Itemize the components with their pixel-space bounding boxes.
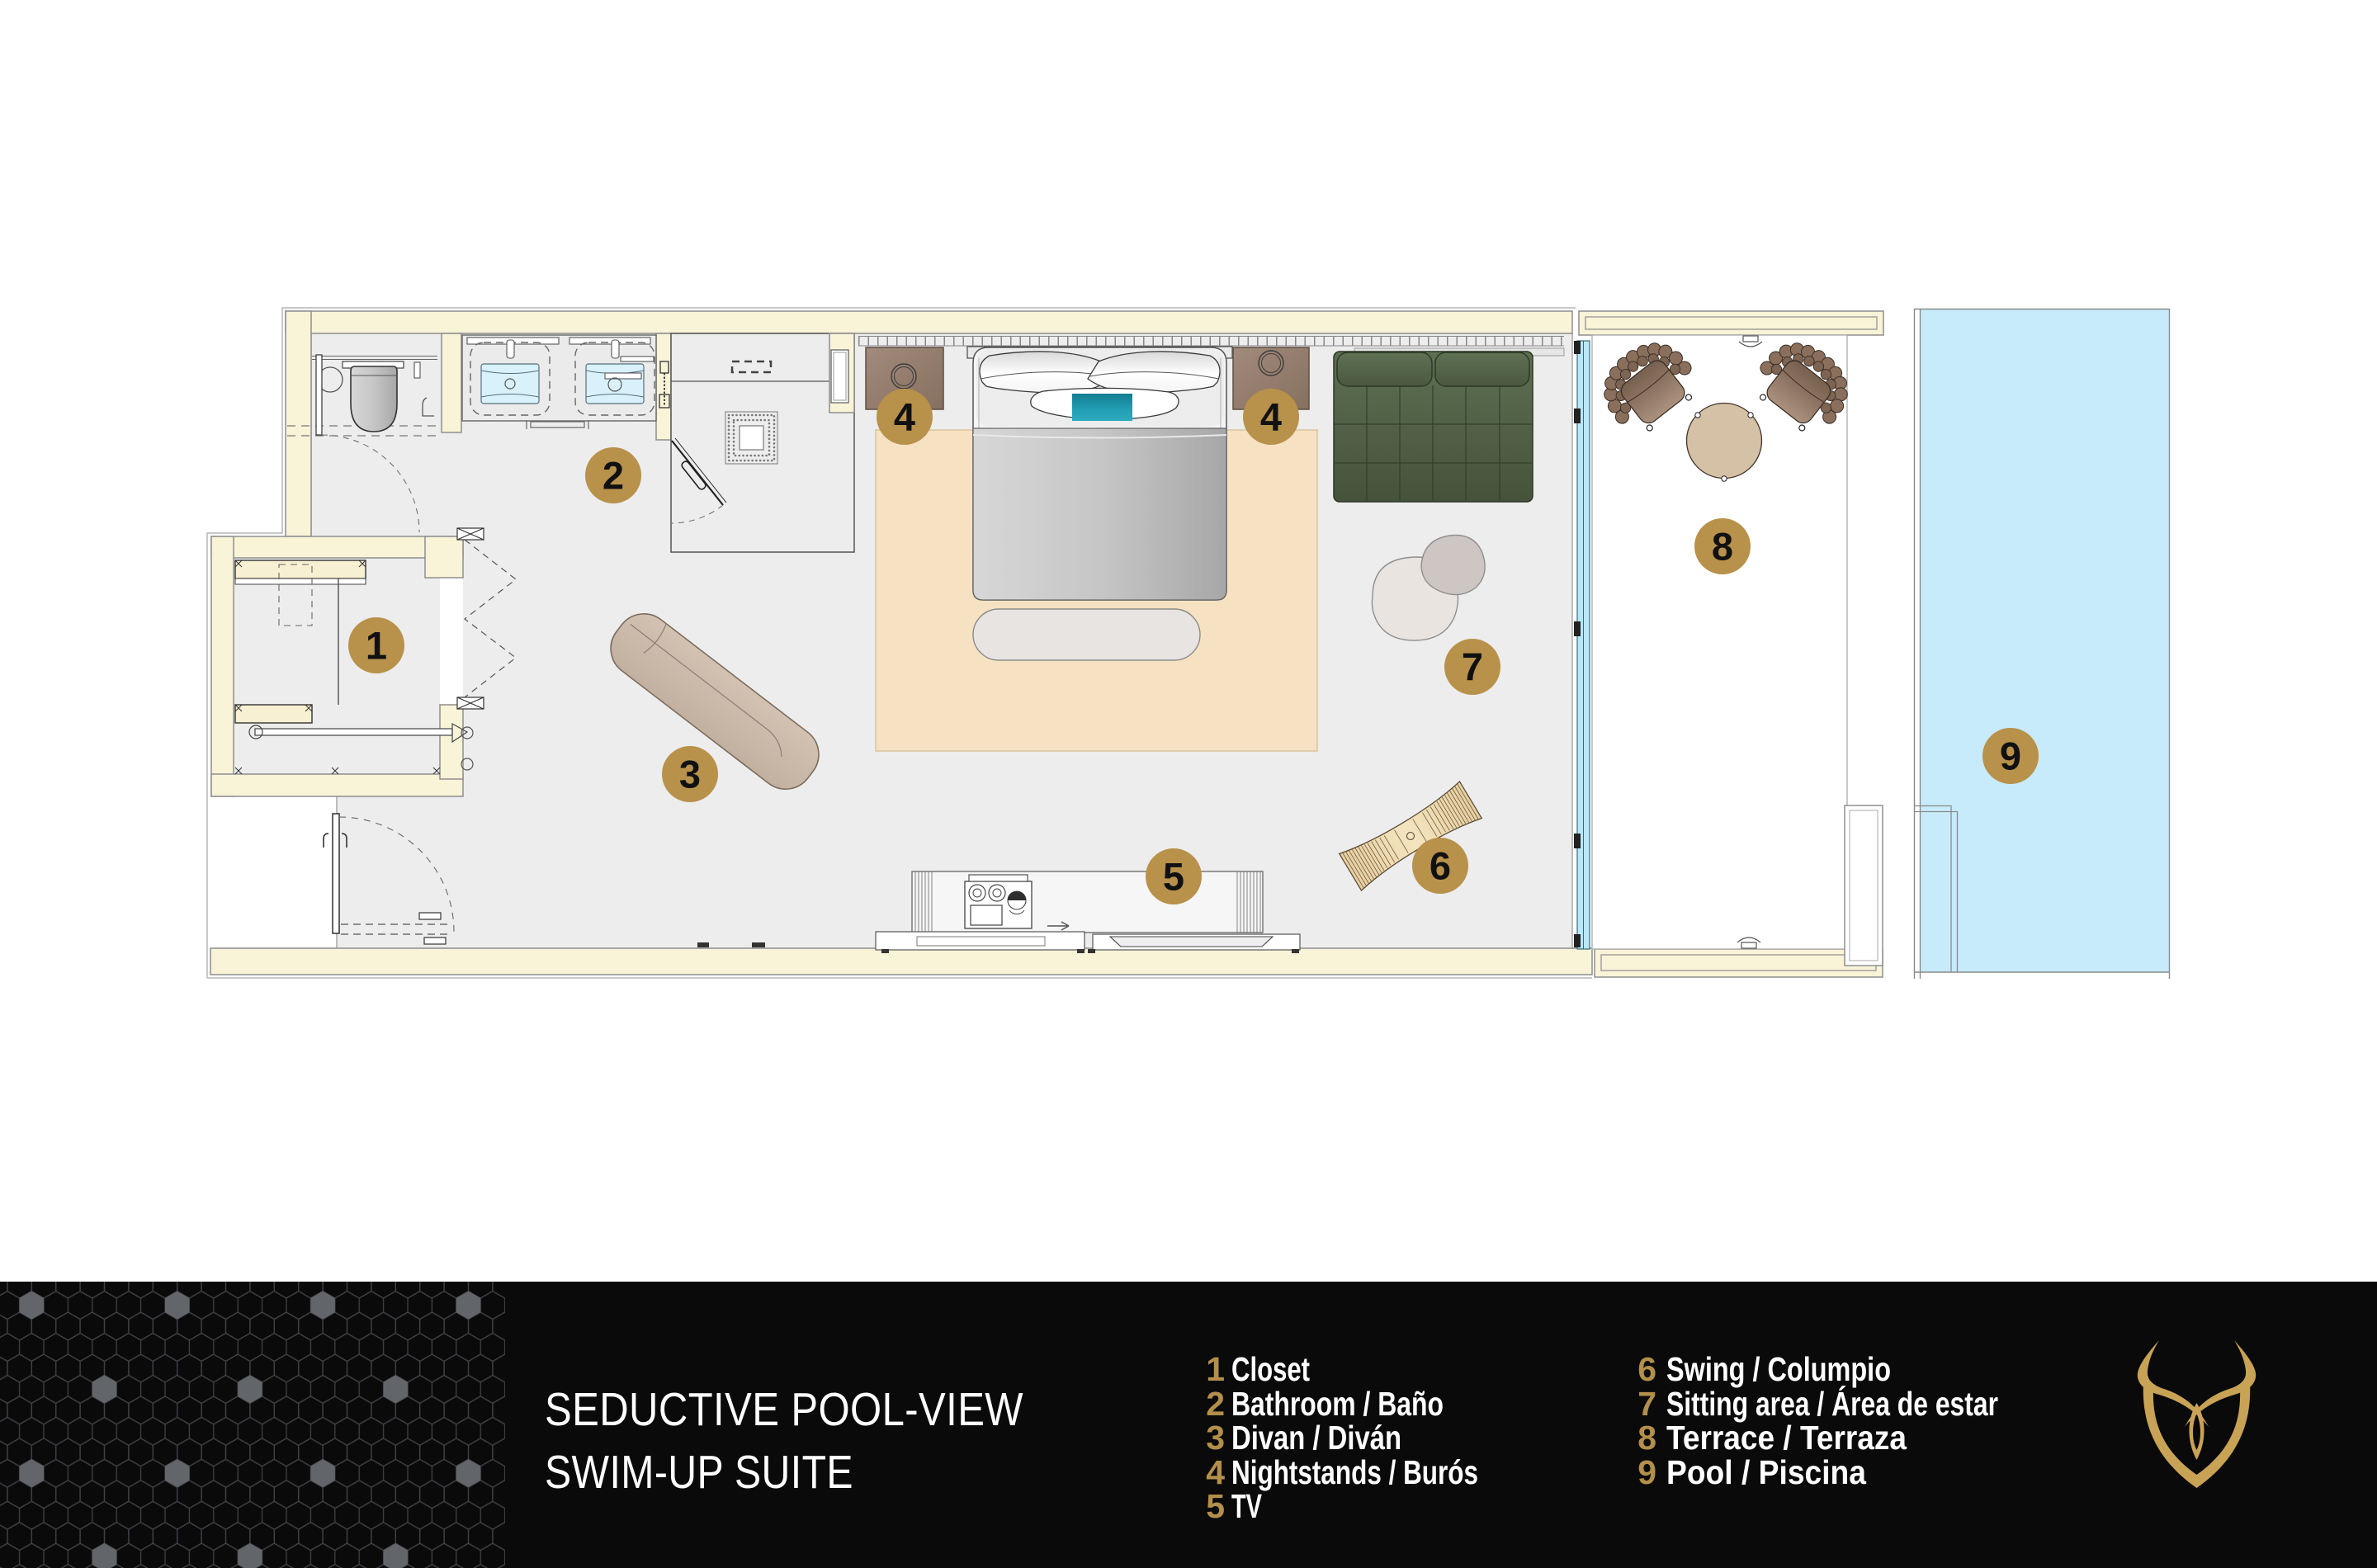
svg-text:Nightstands / Burós: Nightstands / Burós xyxy=(1231,1453,1478,1491)
svg-text:8: 8 xyxy=(1637,1419,1656,1457)
svg-text:1: 1 xyxy=(366,624,387,668)
svg-text:7: 7 xyxy=(1462,645,1483,689)
svg-text:2: 2 xyxy=(1206,1385,1225,1423)
svg-text:1: 1 xyxy=(1206,1350,1225,1388)
svg-text:4: 4 xyxy=(894,395,915,439)
svg-text:Bathroom / Baño: Bathroom / Baño xyxy=(1231,1385,1444,1423)
svg-text:Sitting area / Área de estar: Sitting area / Área de estar xyxy=(1666,1385,1998,1423)
svg-text:Terrace / Terraza: Terrace / Terraza xyxy=(1666,1419,1907,1457)
svg-text:4: 4 xyxy=(1260,395,1282,439)
svg-text:TV: TV xyxy=(1231,1487,1262,1525)
svg-text:2: 2 xyxy=(603,454,624,498)
svg-text:Swing / Columpio: Swing / Columpio xyxy=(1666,1350,1891,1388)
svg-text:8: 8 xyxy=(1712,525,1733,569)
svg-text:SWIM-UP SUITE: SWIM-UP SUITE xyxy=(545,1446,853,1499)
svg-text:9: 9 xyxy=(2000,734,2021,778)
svg-text:3: 3 xyxy=(679,753,701,796)
svg-text:3: 3 xyxy=(1206,1419,1225,1457)
svg-text:SEDUCTIVE POOL-VIEW: SEDUCTIVE POOL-VIEW xyxy=(545,1383,1023,1436)
svg-text:6: 6 xyxy=(1637,1350,1656,1388)
svg-text:7: 7 xyxy=(1637,1385,1656,1423)
svg-text:9: 9 xyxy=(1637,1453,1656,1491)
svg-text:5: 5 xyxy=(1163,855,1184,899)
svg-text:6: 6 xyxy=(1430,844,1451,888)
svg-text:Divan / Diván: Divan / Diván xyxy=(1231,1419,1401,1457)
svg-text:Pool / Piscina: Pool / Piscina xyxy=(1666,1453,1867,1491)
svg-text:Closet: Closet xyxy=(1231,1350,1310,1388)
svg-text:4: 4 xyxy=(1206,1453,1225,1491)
svg-text:5: 5 xyxy=(1206,1487,1225,1525)
